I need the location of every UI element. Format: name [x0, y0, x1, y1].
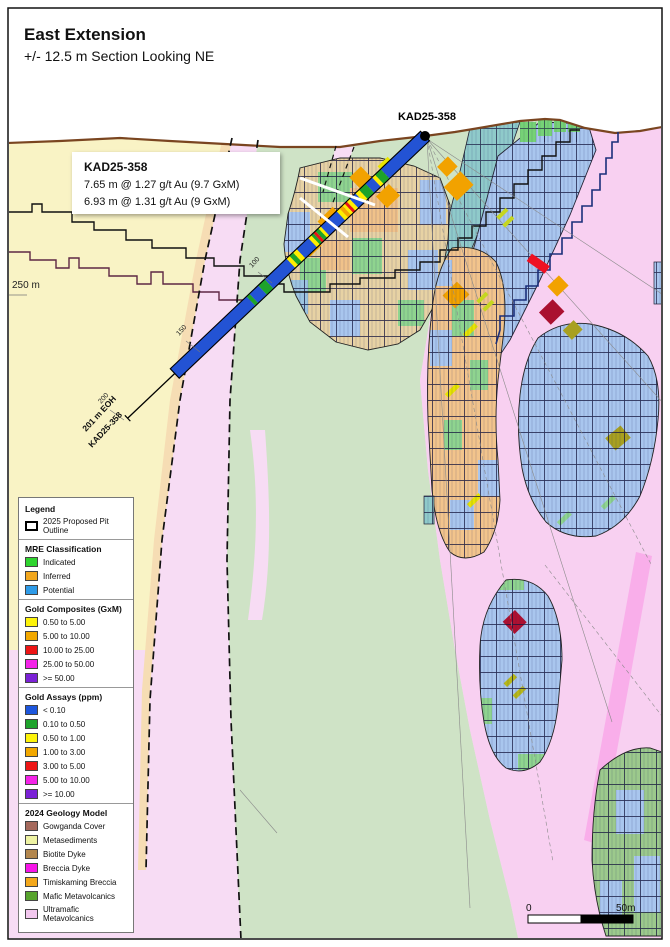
legend-item: 0.50 to 1.00 [25, 733, 127, 743]
page-subtitle: +/- 12.5 m Section Looking NE [24, 48, 214, 64]
callout-line-2: 6.93 m @ 1.31 g/t Au (9 GxM) [84, 196, 230, 208]
legend-item: Inferred [25, 571, 127, 581]
legend-item: 5.00 to 10.00 [25, 775, 127, 785]
legend-assays-title: Gold Assays (ppm) [25, 692, 127, 702]
legend-item: Ultramafic Metavolcanics [25, 905, 127, 923]
legend-panel: Legend 2025 Proposed Pit Outline MRE Cla… [18, 497, 134, 933]
legend-item: >= 10.00 [25, 789, 127, 799]
legend-item: 5.00 to 10.00 [25, 631, 127, 641]
collar-label: KAD25-358 [398, 111, 456, 123]
legend-title: Legend [25, 504, 127, 514]
legend-geology-title: 2024 Geology Model [25, 808, 127, 818]
legend-item: Breccia Dyke [25, 863, 127, 873]
cross-section-figure: 100 150 200 201 m EOH KAD25-358 250 m KA… [0, 0, 670, 947]
legend-item: Mafic Metavolcanics [25, 891, 127, 901]
legend-item: < 0.10 [25, 705, 127, 715]
callout-line-1: 7.65 m @ 1.27 g/t Au (9.7 GxM) [84, 179, 239, 191]
legend-item: Biotite Dyke [25, 849, 127, 859]
scale-right-label: 50m [616, 903, 635, 914]
mre-zone-inferred-column [428, 247, 506, 558]
legend-item: 10.00 to 25.00 [25, 645, 127, 655]
legend-item: Timiskaming Breccia [25, 877, 127, 887]
callout-box: KAD25-358 7.65 m @ 1.27 g/t Au (9.7 GxM)… [72, 152, 280, 214]
legend-item: Metasediments [25, 835, 127, 845]
collar-dot [420, 131, 430, 141]
pit-outline-swatch [25, 521, 38, 531]
mre-zone-bottom-left-blob [480, 576, 563, 771]
legend-item: 1.00 to 3.00 [25, 747, 127, 757]
legend-item: 0.10 to 0.50 [25, 719, 127, 729]
legend-item: 25.00 to 50.00 [25, 659, 127, 669]
legend-item: Potential [25, 585, 127, 595]
legend-item: 0.50 to 5.00 [25, 617, 127, 627]
legend-composites-title: Gold Composites (GxM) [25, 604, 127, 614]
legend-item: 3.00 to 5.00 [25, 761, 127, 771]
elevation-label: 250 m [12, 280, 40, 291]
legend-item-pit-outline: 2025 Proposed Pit Outline [25, 517, 127, 535]
callout-title: KAD25-358 [84, 160, 148, 174]
legend-item: >= 50.00 [25, 673, 127, 683]
legend-item: Indicated [25, 557, 127, 567]
scale-left-label: 0 [526, 903, 532, 914]
legend-item: Gowganda Cover [25, 821, 127, 831]
legend-mre-title: MRE Classification [25, 544, 127, 554]
page-title: East Extension [24, 25, 146, 44]
